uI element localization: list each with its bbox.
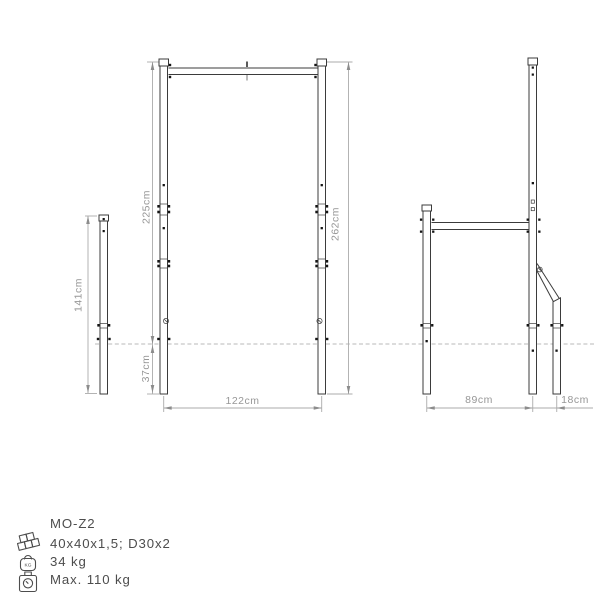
product-weight: 34 kg bbox=[50, 554, 87, 569]
product-profile-spec: 40x40x1,5; D30x2 bbox=[50, 536, 171, 551]
dim-anchor-depth: 37cm bbox=[140, 344, 160, 394]
dim-label-89: 89cm bbox=[465, 394, 493, 406]
dim-side-depth: 89cm bbox=[427, 394, 533, 412]
dim-label-141: 141cm bbox=[73, 278, 85, 312]
dim-label-122: 122cm bbox=[225, 395, 259, 407]
technical-drawing: 141cm bbox=[0, 0, 600, 600]
side-brace bbox=[537, 264, 563, 395]
dim-rear-post: 141cm bbox=[73, 216, 98, 394]
dim-label-225: 225cm bbox=[141, 190, 153, 224]
kg-label: KG bbox=[25, 563, 32, 569]
product-max-load: Max. 110 kg bbox=[50, 572, 131, 587]
front-view: 225cm 37cm 262cm 122cm bbox=[140, 59, 353, 412]
dim-brace-offset: 18cm bbox=[533, 394, 593, 412]
scale-icon bbox=[20, 572, 37, 592]
steel-profiles-icon bbox=[16, 532, 40, 551]
side-front-post bbox=[420, 205, 435, 394]
weight-kg-icon: KG bbox=[21, 556, 36, 571]
side-view: 89cm 18cm bbox=[420, 58, 593, 412]
product-model: MO-Z2 bbox=[50, 516, 96, 531]
dim-front-width: 122cm bbox=[164, 395, 322, 412]
dim-label-37: 37cm bbox=[140, 355, 152, 383]
dim-label-18: 18cm bbox=[561, 394, 589, 406]
pullup-bar-bolts bbox=[169, 64, 317, 78]
rear-post-view: 141cm bbox=[73, 215, 111, 394]
spec-block: KG MO-Z2 40x40x1,5; D30x2 34 kg Max. 110… bbox=[16, 516, 171, 592]
dim-label-262: 262cm bbox=[330, 207, 342, 241]
dim-height-above-ground: 225cm bbox=[141, 62, 159, 344]
